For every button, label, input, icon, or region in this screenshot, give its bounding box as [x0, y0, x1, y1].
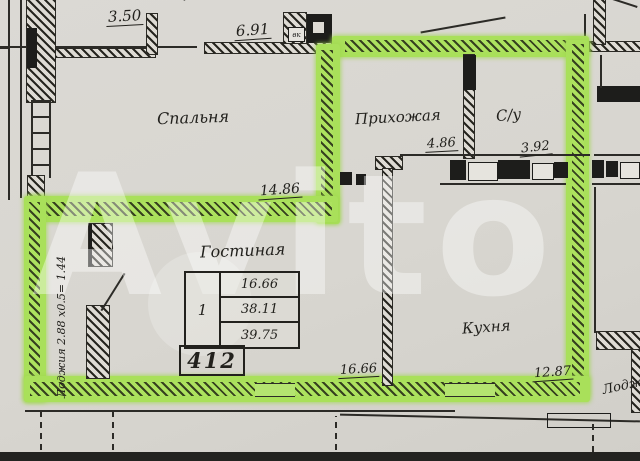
bottom-wall-window-gap-2 [445, 383, 495, 397]
bedroom-top-wall-hatch-right [205, 43, 333, 53]
fixtures-row-bottom-line-right [592, 183, 640, 185]
bottom-dim-line-1 [25, 410, 455, 412]
stamp-area: 38.11 [221, 298, 298, 323]
bottom-small-rect [547, 413, 611, 428]
dim-691: 6.91 [233, 22, 272, 42]
flat-number-box: 412 [179, 345, 245, 376]
right-wall-edge-line [594, 187, 596, 333]
edge-mark-line [612, 0, 637, 7]
hallway-bathroom-divider-stub [463, 55, 476, 90]
left-balcony-tick [0, 47, 8, 49]
bathroom-label: С/у [495, 107, 521, 124]
floor-plan-photo: вк [0, 0, 640, 461]
highlight-right-wall-hatch [572, 44, 584, 392]
stamp-room-count: 1 [186, 273, 221, 347]
kitchen-label: Кухня [462, 318, 512, 336]
dim-tick-4 [592, 420, 594, 452]
vent-shaft-hole [313, 22, 324, 33]
left-loggia-label: Лоджия 2.88 х0.5= 1.44 [56, 238, 67, 398]
right-neighbor-wall-bar [597, 86, 640, 102]
top-right-vertical-wall [594, 0, 605, 44]
living-room-label: Гостиная [200, 242, 286, 261]
bedroom-top-wall-hatch-left [55, 49, 155, 57]
bedroom-label: Спальня [157, 109, 230, 128]
right-neighbor-wall-line [600, 55, 602, 88]
stamp-living-area: 16.66 [221, 273, 298, 298]
bedroom-dim: 14.86 [257, 181, 302, 200]
fixtures-row-top-line-right [594, 154, 640, 156]
fixture-block-6 [592, 160, 604, 178]
fixture-box-3 [620, 162, 640, 179]
leader-line [421, 17, 506, 33]
left-balcony-line-inner [20, 0, 22, 198]
flat-number: 412 [187, 350, 237, 371]
hallway-dim: 4.86 [425, 136, 459, 153]
highlight-top-wall-hatch [345, 40, 585, 52]
bedroom-left-wall-solid [27, 28, 37, 68]
left-balcony-line-outer [8, 0, 10, 200]
wall-stub-top [147, 14, 157, 54]
hallway-label: Прихожая [355, 108, 441, 127]
photo-bottom-dark-band [0, 452, 640, 461]
top-clipped-label: Прихожая [168, 0, 265, 1]
right-loggia-wall [597, 332, 640, 349]
area-stamp-table: 1 16.66 38.11 39.75 [184, 271, 300, 349]
kitchen-dim: 12.87 [532, 365, 574, 383]
stamp-total-area: 39.75 [221, 323, 298, 347]
fixture-block-7 [606, 161, 618, 177]
living-room-dim: 16.66 [338, 362, 380, 379]
bottom-wall-window-gap-1 [255, 383, 295, 397]
vent-vk-label: вк [292, 31, 300, 39]
vent-vk-box: вк [288, 27, 305, 42]
highlight-bottom-wall-hatch [30, 382, 580, 396]
dim-350: 3.50 [106, 8, 144, 27]
